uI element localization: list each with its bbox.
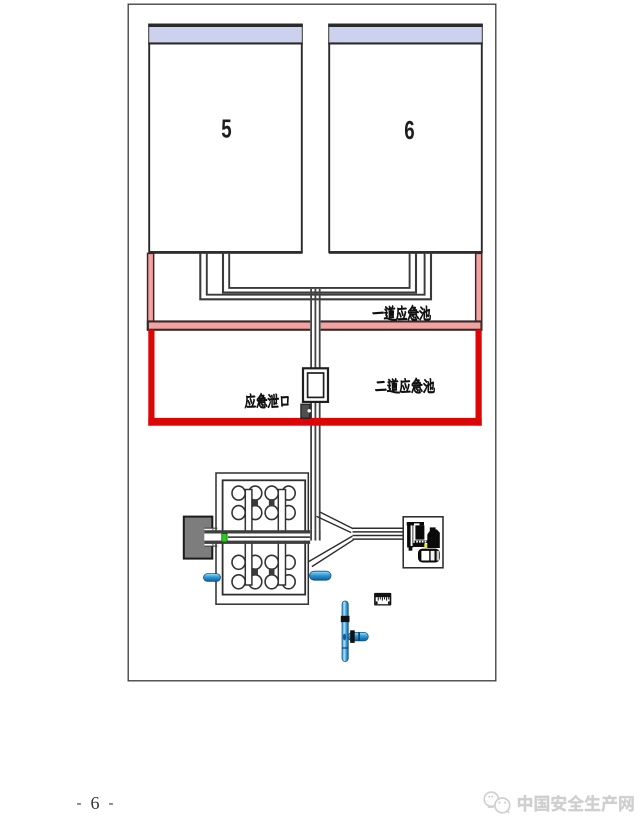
svg-text:6: 6 — [404, 115, 414, 145]
svg-text:5: 5 — [221, 113, 231, 143]
svg-text:6: 6 — [91, 793, 100, 813]
svg-text:-: - — [77, 796, 82, 812]
svg-text:-: - — [109, 796, 114, 812]
